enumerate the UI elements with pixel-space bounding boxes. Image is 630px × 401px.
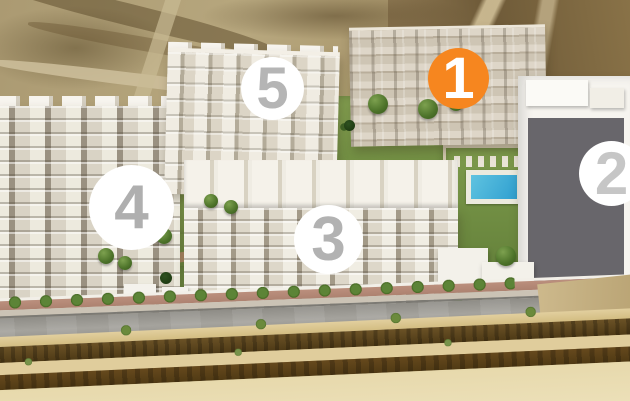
phase-marker-2-label: 2: [595, 144, 628, 204]
tree: [224, 200, 238, 214]
apartment-block-3-roof: [184, 160, 458, 208]
palm-tree: [344, 120, 355, 131]
tree: [496, 246, 516, 266]
sun-loungers: [454, 156, 524, 167]
rooftop-structure: [590, 88, 624, 108]
phase-marker-4-label: 4: [114, 177, 148, 239]
phase-marker-5-label: 5: [256, 60, 288, 118]
swimming-pool-blue: [471, 175, 517, 199]
phase-marker-1-label: 1: [442, 50, 474, 108]
phase-marker-5[interactable]: 5: [241, 57, 304, 120]
phase-marker-4[interactable]: 4: [89, 165, 174, 250]
tree: [204, 194, 218, 208]
phase-marker-3[interactable]: 3: [294, 205, 363, 274]
tree: [98, 248, 114, 264]
phase-marker-3-label: 3: [311, 209, 345, 271]
tree: [418, 99, 438, 119]
phase-marker-1[interactable]: 1: [428, 48, 489, 109]
tree: [368, 94, 388, 114]
rooftop-structure: [526, 80, 588, 106]
tree: [118, 256, 132, 270]
aerial-render-canvas: 1 2 3 4 5: [0, 0, 630, 401]
palm-tree: [160, 272, 172, 284]
